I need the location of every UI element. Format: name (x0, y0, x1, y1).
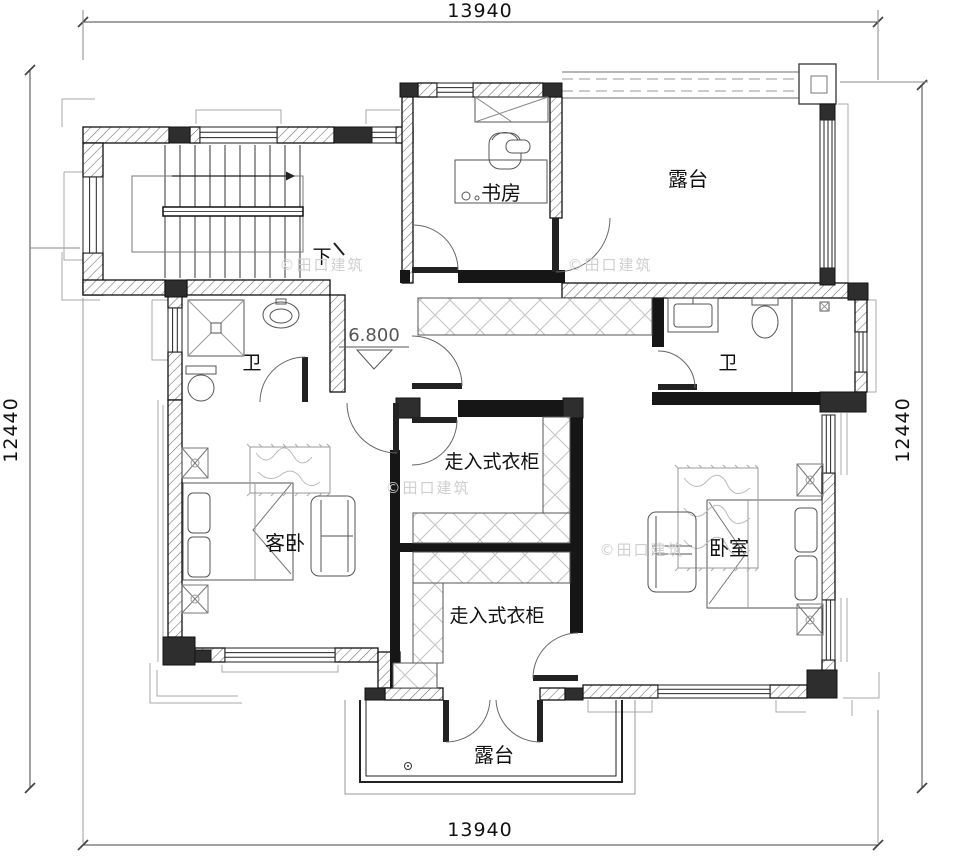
terrace-railing-window (820, 120, 835, 268)
nightstand-plant (797, 464, 823, 496)
room-label-bath-left: 卫 (242, 352, 261, 374)
nightstand-plant (797, 604, 823, 635)
window (200, 127, 277, 143)
guest-bedroom-furniture (182, 444, 355, 613)
stair-arrow (286, 172, 295, 181)
room-label-study: 书房 (481, 181, 521, 205)
terrace-bottom-structure (360, 700, 622, 782)
study-door-leaf (412, 267, 458, 273)
bath-right-fixtures (668, 298, 829, 338)
watermark: ©田口建筑 (279, 256, 364, 274)
down-tick (334, 243, 344, 255)
elevation-marker: 6.800 (339, 325, 409, 369)
window (372, 127, 396, 143)
room-label-bedroom: 卧室 (709, 536, 749, 560)
bath-left-fixtures (186, 299, 299, 401)
dim-top: 13940 (447, 0, 512, 22)
watermark: ©田口建筑 (385, 479, 470, 497)
window (225, 648, 335, 662)
toilet-tank (752, 298, 778, 305)
sink (674, 304, 712, 327)
room-label-bath-right: 卫 (718, 352, 737, 374)
terrace-door-leaf (552, 218, 559, 272)
elevation-value: 6.800 (348, 325, 400, 346)
window (658, 685, 770, 698)
nightstand-plant (182, 585, 208, 613)
room-label-closet-lower: 走入式衣柜 (449, 605, 544, 627)
terrace-door-left-leaf (443, 700, 449, 742)
closet-lower-door-leaf (533, 675, 578, 681)
window (822, 415, 835, 473)
floor-plan-page: 13940 13940 12440 12440 (0, 0, 960, 860)
terrace-pergola (562, 64, 836, 104)
dim-right: 12440 (892, 397, 914, 462)
window (822, 600, 835, 660)
dim-left: 12440 (0, 397, 22, 462)
terrace-door-right-leaf (537, 700, 543, 742)
watermark: ©田口建筑 (599, 541, 684, 559)
window (168, 308, 182, 352)
hall-door-leaf (412, 383, 462, 389)
window (83, 177, 103, 253)
bath-left-door-leaf (302, 357, 308, 402)
closet-upper-door-leaf (412, 417, 457, 423)
toilet-bowl (188, 375, 214, 401)
room-label-terrace-bottom: 露台 (474, 743, 514, 767)
dim-bottom: 13940 (447, 819, 512, 841)
nightstand-plant (182, 448, 208, 478)
toilet-tank (186, 366, 216, 374)
toilet-bowl (752, 306, 778, 338)
bath-right-door-leaf (658, 384, 697, 390)
room-label-guest-bedroom: 客卧 (265, 531, 305, 555)
watermark: ©田口建筑 (567, 256, 652, 274)
window (855, 332, 867, 372)
sink (263, 302, 299, 328)
window (437, 83, 473, 97)
elevation-triangle (357, 350, 392, 369)
room-label-closet-upper: 走入式衣柜 (444, 451, 539, 473)
floor-plan-drawing: 13940 13940 12440 12440 (0, 0, 960, 860)
room-label-terrace-top: 露台 (668, 167, 708, 191)
guest-bedroom-door-leaf (393, 403, 399, 453)
